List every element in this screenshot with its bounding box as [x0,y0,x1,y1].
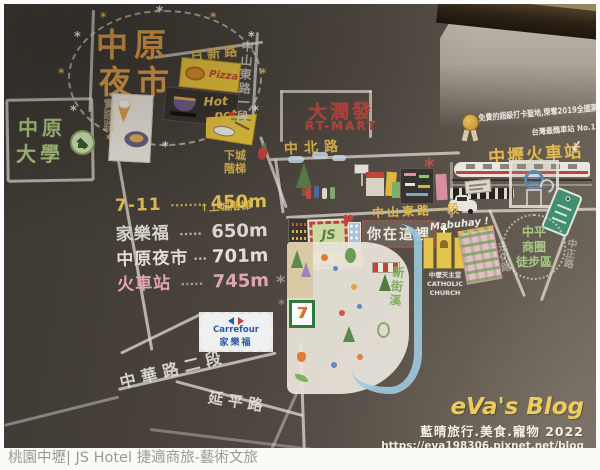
distance-row: 中原夜市 ··· 701m [116,241,269,270]
church-label: 中壢天主堂 CATHOLIC CHURCH [421,271,469,297]
cloud-icon [312,152,328,159]
signboard-pole [361,174,363,186]
person-icon [314,186,319,198]
sign-text-line [469,187,483,190]
university-name-line1: 中原 [18,112,66,141]
menu-dot-line [292,223,306,226]
sparkle-mark [162,140,169,155]
flower-icon [339,310,345,316]
road-label-zhonghua: 中華路二段 [117,343,230,393]
sparkle-mark [260,66,266,80]
flower-icon [333,266,338,271]
tag-script-line [557,204,572,211]
pizza-label: Pizza [208,69,238,83]
chalkboard-map-photo: 中原 夜市 Pizza Hot pot 日新路 中山東路一段 實踐路 中原 大學… [4,4,596,448]
neon-sign [406,193,428,196]
chalk-snowflake [278,298,285,313]
menu-dot-line [292,237,306,240]
flower-icon [321,254,328,261]
graduation-cap-badge [70,130,95,155]
church-nave [436,232,452,269]
blog-photo-post: 中原 夜市 Pizza Hot pot 日新路 中山東路一段 實踐路 中原 大學… [0,0,600,470]
distance-value: 701m [212,245,269,267]
district-line2: 商圈 [522,240,546,255]
dotted-leader: ····· [170,226,212,241]
distance-list: 7-11 ······· 450m 家樂福 ····· 650m 中原夜市 ··… [115,191,270,295]
person-icon [306,188,311,199]
person-icon [330,187,335,199]
sparkle-mark [156,4,163,20]
road-label-zhongshan-horizontal: 中山東路一段 [372,200,463,222]
carrefour-logo [228,317,244,325]
tree-icon [301,262,311,277]
leaf-icon [295,374,308,382]
road-label-shijian: 實踐路 [100,98,116,150]
dotted-leader: ··· [188,251,212,266]
road-line [120,313,202,355]
dotted-leader: ······· [161,198,210,213]
sparkle-mark [70,104,77,119]
road-line [280,90,372,93]
rt-mart-name-en: RT-MART [305,119,377,133]
distance-label: 家樂福 [115,219,170,245]
sparkle-mark [74,30,81,45]
tra-logo-bar [529,177,539,179]
car-wheel [468,209,473,214]
photo-caption: 桃園中壢| JS Hotel 捷適商旅-藝術文旅 [0,448,600,470]
sparkle-mark [58,66,64,80]
distance-label: 中原夜市 [116,243,189,270]
firework-icon [424,154,434,178]
stall-red-awning [366,172,384,196]
stairs-down-label: 下城階梯 [224,150,252,175]
distance-label: 火車站 [117,269,172,295]
carrefour-name-en: Carrefour [213,325,259,335]
distance-value: 745m [212,270,269,292]
sign-text-line [469,183,487,187]
distance-row: 家樂福 ····· 650m [115,216,268,245]
menu-dot-line [292,230,306,233]
flower-icon [331,362,337,368]
distance-row: 火車站 ····· 745m [117,266,270,295]
district-line3: 徒步區 [516,255,552,270]
hot-pot-icon [173,96,196,112]
person-icon [322,188,327,199]
road-line [150,428,317,448]
road-line [4,395,119,426]
medal-ribbon [471,130,479,142]
watermark-url: https://eva198306.pixnet.net/blog [381,440,584,448]
stall-sign-green [392,182,400,198]
cross-icon [441,228,447,230]
neon-sign [404,173,416,176]
tag-script-line [554,210,567,217]
church-label-en: CATHOLIC CHURCH [427,280,463,297]
church-label-zh: 中壢天主堂 [429,271,462,279]
tag-hole [565,195,572,202]
carrefour-logo-right [238,317,244,325]
crossing-sign [464,179,491,195]
medal-icon [462,114,479,131]
neon-sign [405,183,415,186]
carrefour-name-zh: 家樂福 [219,335,252,348]
road-label-yanping: 延平路 [207,386,270,416]
market-stalls-illustration [284,150,464,208]
district-line1: 中平 [522,225,546,240]
carrefour-logo-left [228,317,234,325]
distance-value: 450m [210,191,267,213]
distance-label: 7-11 [115,195,162,216]
turnip-icon [297,352,306,362]
pot-stand [170,111,196,118]
dotted-leader: ····· [171,276,213,291]
distance-value: 650m [211,220,268,242]
seven-eleven-logo: 7 [289,300,315,328]
university-name-line2: 大學 [16,138,64,167]
ice-cream-icon [117,106,130,123]
station-doorway [526,189,542,205]
cloud-icon [332,155,346,161]
watermark: eVa's Blog 藍晴旅行.美食.寵物 2022 https://eva19… [381,394,584,448]
stall-sign-pink [435,174,447,201]
chili-stem [262,143,266,149]
watermark-blog-name: eVa's Blog [381,394,584,420]
sparkle-mark [210,10,216,24]
medal-ribbon [462,130,470,142]
church-tower [423,237,434,269]
chalk-snowflake [276,272,285,293]
neon-sign [418,185,430,188]
tra-logo-bar [529,182,539,184]
church-window [440,240,448,248]
seven-eleven-7: 7 [297,304,307,322]
graduation-cap-base [78,144,87,148]
pancake-icon [184,65,205,81]
tree-icon [296,162,312,188]
road-line [280,90,283,142]
watermark-tagline: 藍晴旅行.美食.寵物 2022 [381,421,584,440]
